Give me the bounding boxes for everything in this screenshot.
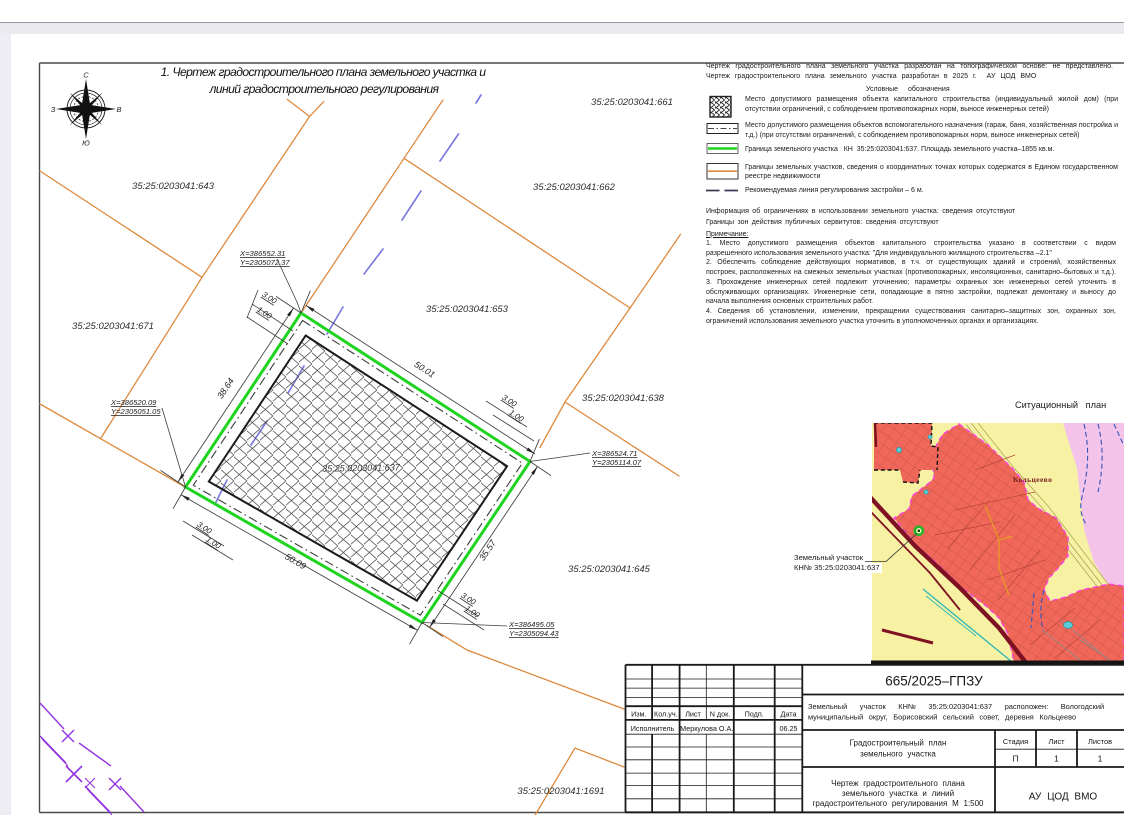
svg-text:06.25: 06.25 xyxy=(780,724,798,733)
svg-text:земельного участка и линий: земельного участка и линий xyxy=(842,789,954,798)
svg-text:П: П xyxy=(1012,754,1018,764)
svg-text:земельного участка: земельного участка xyxy=(860,750,936,759)
svg-text:Стадия: Стадия xyxy=(1003,737,1028,746)
svg-text:Кол.уч.: Кол.уч. xyxy=(654,710,678,719)
svg-text:Чертеж градостроительного план: Чертеж градостроительного плана xyxy=(831,779,965,788)
svg-text:Дата: Дата xyxy=(781,710,797,719)
svg-text:АУ ЦОД ВМО: АУ ЦОД ВМО xyxy=(1029,792,1098,803)
svg-text:N док.: N док. xyxy=(710,710,731,719)
svg-text:градостроительного регулирован: градостроительного регулирования М 1:500 xyxy=(813,799,985,808)
svg-text:Изм.: Изм. xyxy=(631,710,646,719)
svg-text:665/2025–ГПЗУ: 665/2025–ГПЗУ xyxy=(885,674,983,689)
svg-text:Исполнитель: Исполнитель xyxy=(631,724,675,733)
svg-text:муниципальный округ, Борисовск: муниципальный округ, Борисовский сельски… xyxy=(808,713,1076,722)
svg-text:Меркулова О.А.: Меркулова О.А. xyxy=(680,724,733,733)
svg-text:1: 1 xyxy=(1054,754,1059,764)
svg-text:Подп.: Подп. xyxy=(745,710,764,719)
svg-text:Земельный участок КН№ 35:25:02: Земельный участок КН№ 35:25:0203041:637 … xyxy=(808,702,1104,711)
svg-text:Градостроительный план: Градостроительный план xyxy=(850,739,947,748)
svg-text:Лист: Лист xyxy=(1048,737,1065,746)
svg-text:1: 1 xyxy=(1098,754,1103,764)
svg-text:Листов: Листов xyxy=(1088,737,1112,746)
svg-text:Лист: Лист xyxy=(685,710,701,719)
